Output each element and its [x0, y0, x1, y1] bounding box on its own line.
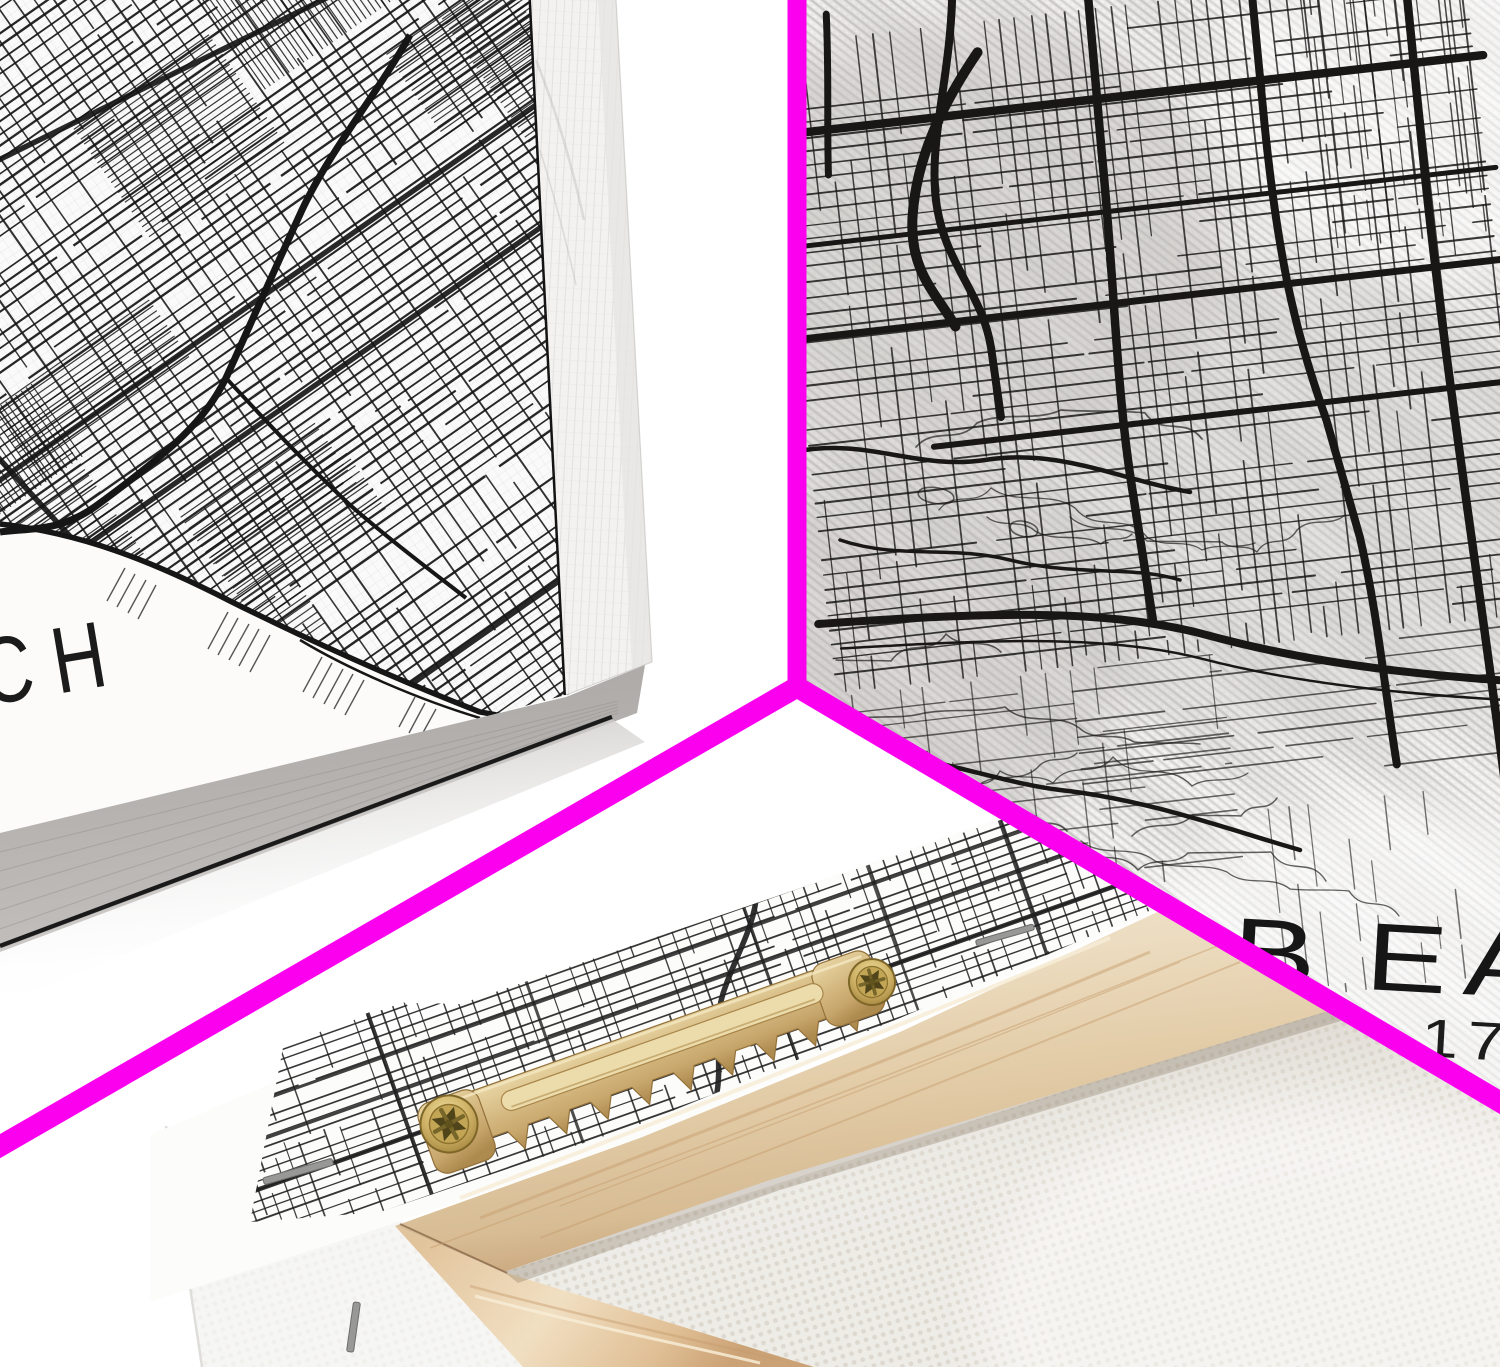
svg-text:E: E: [1363, 903, 1451, 1014]
svg-text:A: A: [1461, 907, 1500, 1019]
